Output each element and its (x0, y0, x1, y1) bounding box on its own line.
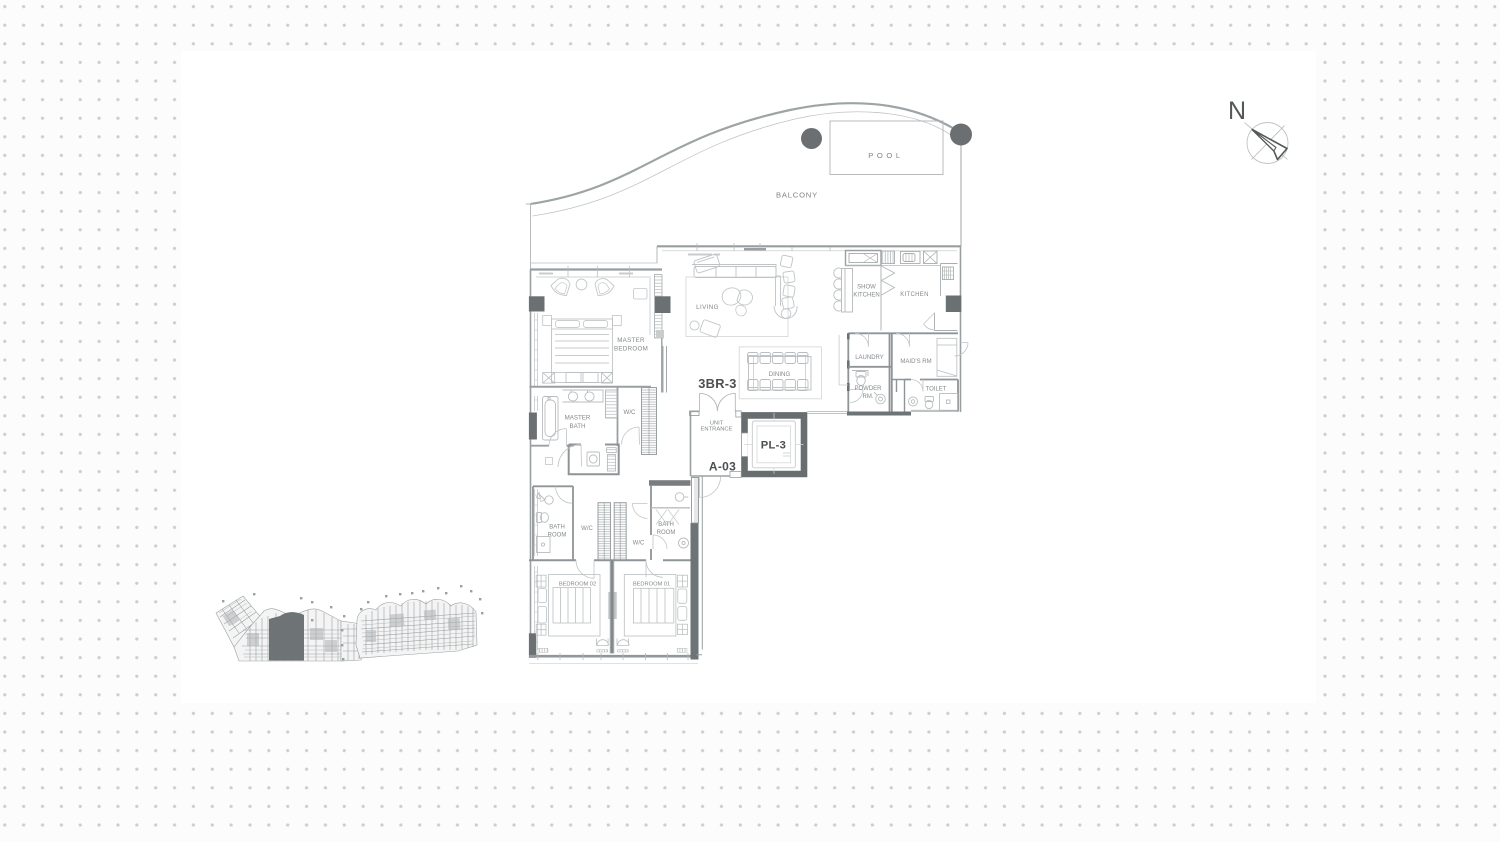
svg-text:KITCHEN: KITCHEN (853, 293, 879, 299)
svg-text:ROOM: ROOM (548, 533, 567, 539)
svg-text:MASTER: MASTER (617, 337, 645, 344)
svg-text:3BR-3: 3BR-3 (698, 376, 736, 391)
svg-text:TOILET: TOILET (926, 387, 947, 393)
svg-text:KITCHEN: KITCHEN (900, 292, 928, 298)
svg-text:W/C: W/C (633, 541, 645, 547)
svg-text:LAUNDRY: LAUNDRY (855, 355, 884, 361)
svg-text:W/C: W/C (623, 409, 636, 416)
svg-text:RM.: RM. (863, 394, 874, 400)
svg-text:POOL: POOL (868, 151, 904, 160)
svg-text:SHOW: SHOW (857, 285, 876, 291)
svg-text:BATH: BATH (569, 423, 585, 430)
svg-text:W/C: W/C (581, 526, 593, 532)
svg-text:POWDER: POWDER (855, 386, 883, 392)
svg-text:PL-3: PL-3 (761, 440, 786, 452)
svg-text:ROOM: ROOM (657, 530, 676, 536)
svg-text:ENTRANCE: ENTRANCE (701, 427, 733, 433)
svg-text:N: N (1228, 97, 1246, 125)
svg-text:BEDROOM 02: BEDROOM 02 (559, 582, 596, 588)
svg-text:LIVING: LIVING (696, 304, 719, 311)
svg-text:BALCONY: BALCONY (776, 191, 818, 200)
svg-text:BEDROOM: BEDROOM (614, 346, 648, 353)
svg-text:BATH: BATH (658, 522, 674, 528)
svg-text:MAID'S RM: MAID'S RM (900, 359, 931, 365)
svg-text:DINING: DINING (769, 371, 791, 378)
svg-text:BATH: BATH (549, 525, 565, 531)
svg-text:BEDROOM 01: BEDROOM 01 (633, 582, 670, 588)
svg-text:MASTER: MASTER (565, 415, 591, 422)
